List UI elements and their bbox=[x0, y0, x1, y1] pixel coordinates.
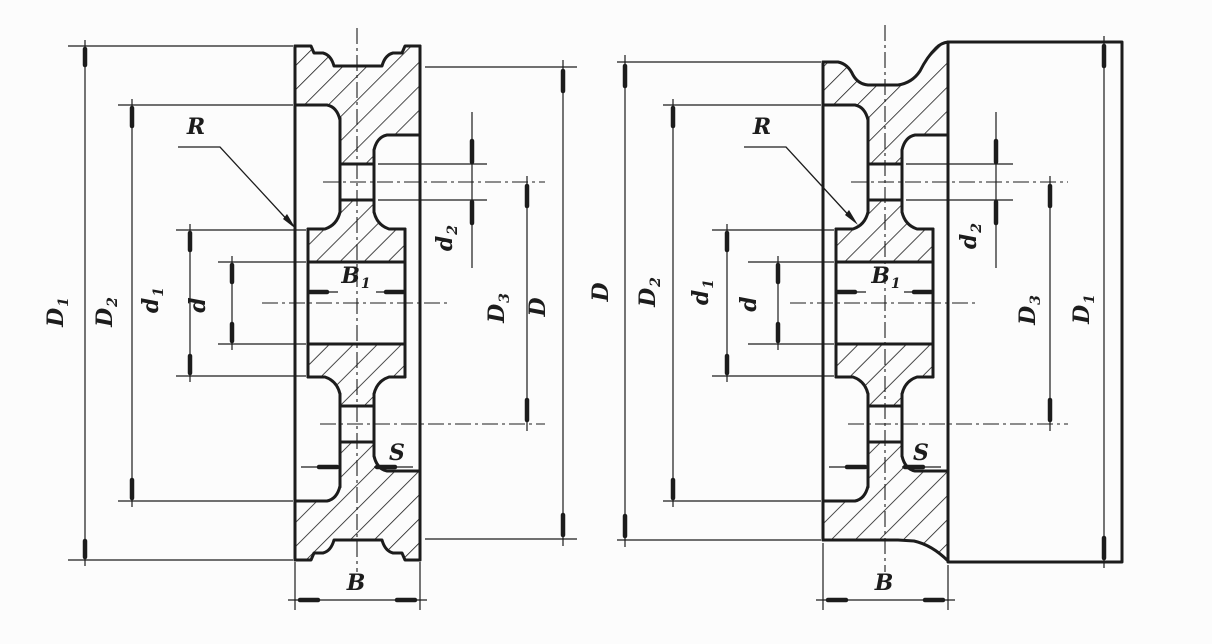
label-left-d1: d1 bbox=[138, 287, 167, 313]
label-left-d2-sub: 2 bbox=[445, 225, 461, 236]
label-left-d2: d2 bbox=[432, 225, 461, 251]
label-left-R-base: R bbox=[186, 114, 205, 140]
label-left-d1-base: d bbox=[138, 298, 164, 313]
right-figure bbox=[617, 25, 1122, 610]
label-right-B1: B1 bbox=[870, 263, 900, 292]
label-right-D2-sub: 2 bbox=[648, 277, 664, 288]
left-radius-leader bbox=[178, 147, 296, 229]
label-right-D1: D1 bbox=[1069, 294, 1098, 325]
label-left-D3-sub: 3 bbox=[497, 293, 513, 303]
label-right-B: B bbox=[874, 570, 894, 596]
sheave-section-drawing: D1 D2 d1 d R B1 d2 D3 D S B D D2 d1 d R … bbox=[0, 0, 1212, 644]
label-right-D1-sub: 1 bbox=[1082, 294, 1098, 304]
label-left-d1-sub: 1 bbox=[151, 287, 167, 297]
label-left-B: B bbox=[346, 570, 366, 596]
label-left-D3-base: D bbox=[484, 304, 510, 324]
label-right-d1: d1 bbox=[688, 279, 717, 305]
right-radius-leader bbox=[744, 147, 858, 225]
label-right-d-base: d bbox=[736, 296, 762, 311]
label-right-D: D bbox=[588, 282, 614, 302]
label-left-D1-base: D bbox=[43, 308, 69, 328]
label-left-D1: D1 bbox=[43, 297, 72, 328]
label-left-S: S bbox=[389, 440, 405, 466]
right-figure-extension-lines bbox=[617, 62, 1013, 610]
right-radius-leader-arrow bbox=[845, 210, 858, 225]
label-right-d2-base: d bbox=[956, 234, 982, 249]
label-left-B-base: B bbox=[346, 570, 366, 596]
label-left-D-base: D bbox=[525, 297, 551, 317]
label-right-D1-base: D bbox=[1069, 305, 1095, 325]
label-left-d-base: d bbox=[185, 297, 211, 312]
label-right-d1-sub: 1 bbox=[701, 279, 717, 289]
label-left-D: D bbox=[525, 297, 551, 317]
label-right-d2: d2 bbox=[956, 223, 985, 249]
label-left-B1-sub: 1 bbox=[361, 276, 371, 292]
label-right-d1-base: d bbox=[688, 290, 714, 305]
label-right-R: R bbox=[752, 114, 771, 140]
label-right-D2: D2 bbox=[635, 277, 664, 308]
label-left-B1-base: B bbox=[340, 263, 360, 289]
label-right-D-base: D bbox=[588, 282, 614, 302]
label-right-B1-base: B bbox=[870, 263, 890, 289]
label-left-D2-sub: 2 bbox=[105, 297, 121, 308]
label-left-S-base: S bbox=[389, 440, 405, 466]
label-right-D2-base: D bbox=[635, 288, 661, 308]
label-right-R-base: R bbox=[752, 114, 771, 140]
label-right-B-base: B bbox=[874, 570, 894, 596]
label-left-d: d bbox=[185, 297, 211, 312]
label-left-B1: B1 bbox=[340, 263, 370, 292]
drawing-page: D1 D2 d1 d R B1 d2 D3 D S B D D2 d1 d R … bbox=[0, 0, 1212, 644]
label-right-B1-sub: 1 bbox=[891, 276, 901, 292]
label-left-D2-base: D bbox=[92, 308, 118, 328]
label-right-d: d bbox=[736, 296, 762, 311]
label-right-D3-sub: 3 bbox=[1028, 295, 1044, 305]
label-right-D3-base: D bbox=[1015, 306, 1041, 326]
label-left-d2-base: d bbox=[432, 236, 458, 251]
label-left-D2: D2 bbox=[92, 297, 121, 328]
label-left-D1-sub: 1 bbox=[56, 297, 72, 307]
label-right-d2-sub: 2 bbox=[969, 223, 985, 234]
label-left-D3: D3 bbox=[484, 293, 513, 324]
label-right-S: S bbox=[913, 440, 929, 466]
label-left-R: R bbox=[186, 114, 205, 140]
label-right-S-base: S bbox=[913, 440, 929, 466]
label-right-D3: D3 bbox=[1015, 295, 1044, 326]
